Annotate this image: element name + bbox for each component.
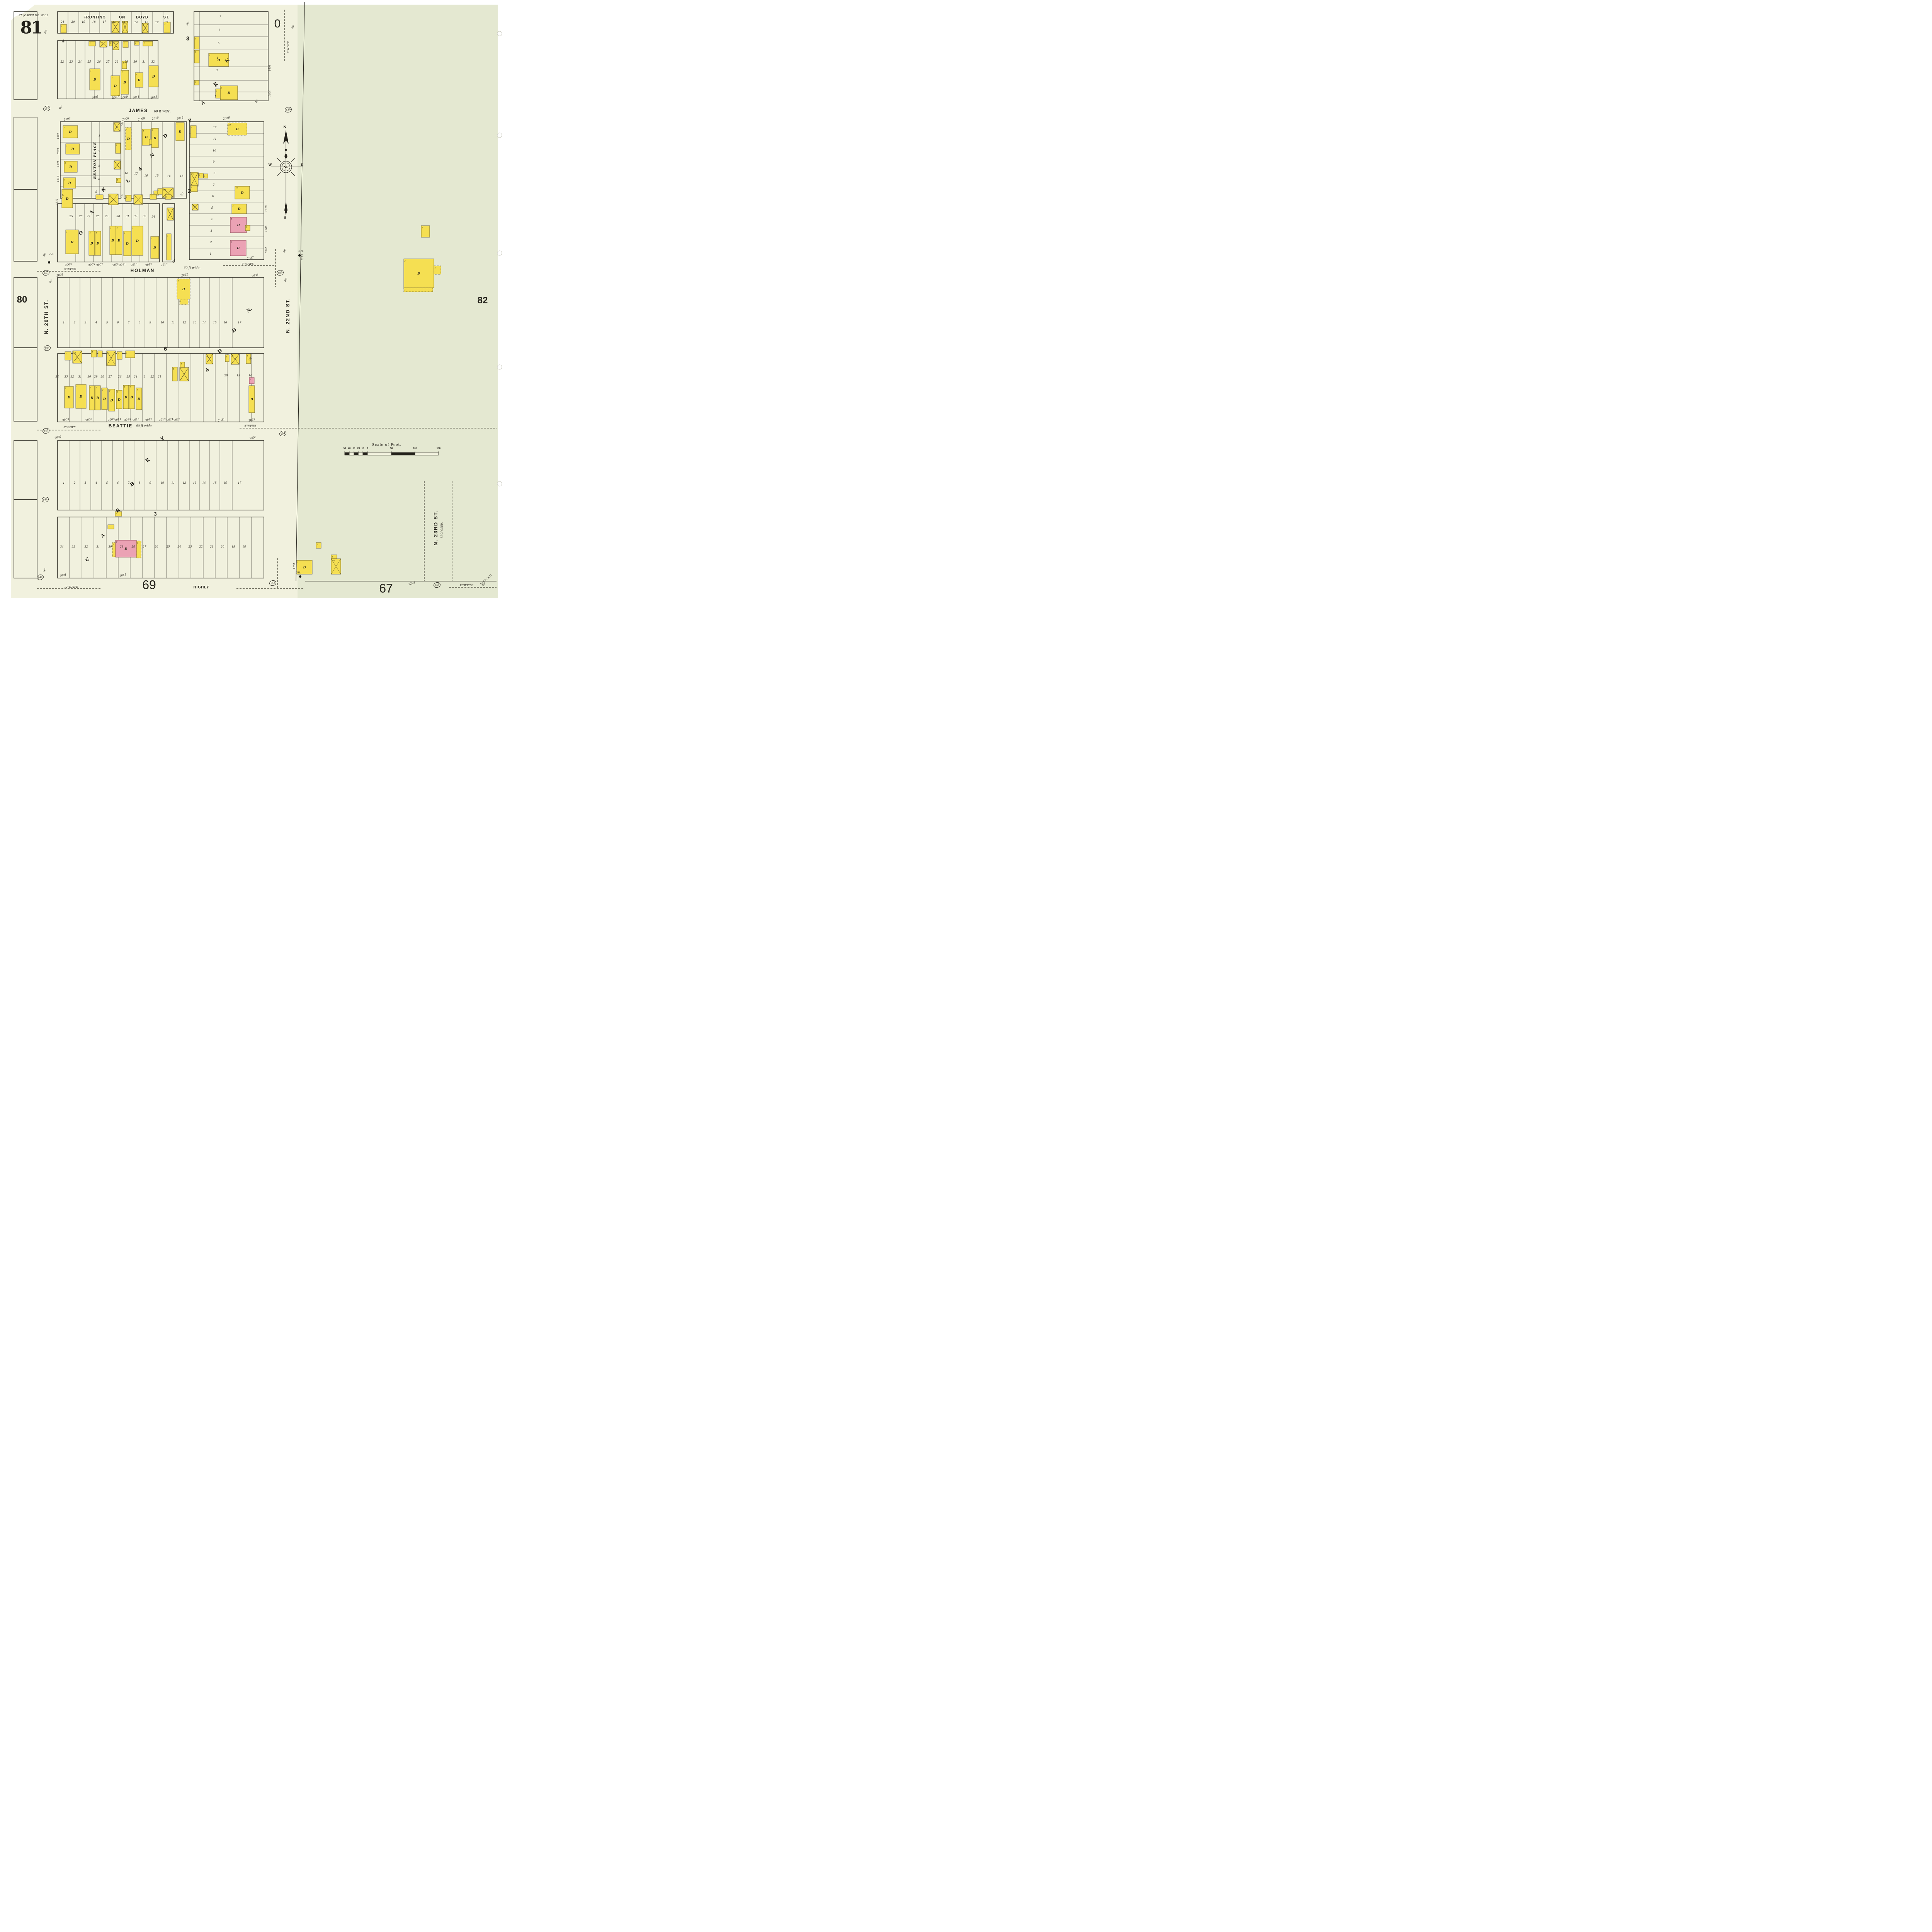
lot-number: 34 <box>152 215 155 218</box>
dwelling-label: D <box>68 181 71 185</box>
lot-number: 33 <box>143 215 146 218</box>
lot-number: 30 <box>109 545 112 548</box>
lot-number: 1 <box>63 481 65 485</box>
story-annotation: 1 <box>90 70 92 72</box>
lot-number: 12 <box>183 481 186 485</box>
lot-number: 14 <box>202 481 206 485</box>
story-annotation: 2 <box>109 195 111 197</box>
lot-number: 5 <box>95 190 97 194</box>
lot-number: 1 <box>210 252 211 255</box>
lot-number: 24 <box>78 60 82 63</box>
street-name-vertical: N. 23RD ST. <box>433 510 439 545</box>
story-annotation: 1½ <box>73 352 77 354</box>
story-annotation: 1 <box>136 74 137 76</box>
lot-number: 13 <box>193 321 197 324</box>
lot-number: 7 <box>219 15 221 19</box>
lot-number: 14 <box>202 321 206 324</box>
story-annotation: 1 <box>117 227 118 230</box>
lot-number: 31 <box>143 60 146 63</box>
story-annotation: 1 <box>96 232 97 235</box>
punch-hole <box>497 133 502 138</box>
house-number-vertical: 1311 <box>55 199 58 205</box>
dwelling-label: D <box>152 75 155 78</box>
lot-number: 11 <box>165 21 169 24</box>
lot-number: 7 <box>128 481 129 485</box>
story-annotation: 1 <box>181 363 182 366</box>
dwelling-label: D <box>138 78 141 82</box>
lot-number: 20 <box>224 374 228 377</box>
lot-number: 29 <box>120 545 124 548</box>
dwelling-label: D <box>145 135 148 139</box>
story-annotation: 1 <box>317 544 318 546</box>
lot-number: 4 <box>95 321 97 324</box>
story-annotation: 1 <box>66 231 68 233</box>
lot-number: 13 <box>193 481 197 485</box>
compass-ray <box>277 172 281 176</box>
hydrant-label: D.H. <box>296 571 301 574</box>
lot-number: 8 <box>214 172 215 175</box>
lot-number: 14 <box>167 175 171 178</box>
lot-number: 29 <box>94 375 98 378</box>
lot-number: 16 <box>113 21 116 24</box>
water-pipe-label: 12"W.PIPE <box>460 584 473 587</box>
dwelling-label: D <box>66 197 69 201</box>
dwelling-label: D <box>123 80 126 84</box>
dwelling-label: D <box>153 246 156 250</box>
scale-title: Scale of Feet. <box>372 443 401 447</box>
story-annotation: 1 <box>193 205 194 207</box>
story-annotation: 1 <box>233 205 234 207</box>
story-annotation: 1 <box>246 226 247 229</box>
story-annotation: 1 <box>64 127 65 129</box>
street-name: ST. <box>163 15 170 20</box>
dwelling-label: D <box>114 84 117 88</box>
story-annotation: 2 <box>231 355 233 357</box>
dwelling-label: D <box>241 191 244 195</box>
map-canvas: 111½1111½12111D1D1D21D1D1111D1D21D1D1D2D… <box>0 0 502 602</box>
lot-number: 25 <box>127 375 130 378</box>
lot-number: 2 <box>99 150 100 153</box>
house-number-vertical: 1323 <box>57 148 60 155</box>
story-annotation: 1½ <box>163 189 166 191</box>
block-tier <box>58 440 264 510</box>
punch-hole <box>497 365 502 369</box>
story-annotation: 1 <box>63 190 64 193</box>
lot-number: 24 <box>134 375 138 378</box>
lot-number: 24 <box>178 545 181 548</box>
house-number-vertical: 1310 <box>265 206 268 212</box>
lot-number: 11 <box>172 321 175 324</box>
partial-block <box>14 500 37 578</box>
lot-number: 12 <box>183 321 186 324</box>
lot-number: 31 <box>126 215 129 218</box>
adjacent-sheet-left: 80 <box>17 294 27 305</box>
lot-number: 27 <box>106 60 110 63</box>
story-annotation: 2 <box>114 124 116 126</box>
dwelling-label: D <box>67 395 70 399</box>
story-annotation: 1 <box>124 43 125 45</box>
compass-monogram: NS <box>283 165 288 169</box>
compass-letter-s: S <box>284 216 286 219</box>
street-line <box>296 2 304 581</box>
lot-number: 32 <box>71 375 74 378</box>
story-annotation: 1 <box>168 209 169 211</box>
scale-tick-label: 0 <box>367 447 368 450</box>
story-annotation: 1 <box>195 82 196 84</box>
lot-number: 17 <box>134 172 138 175</box>
story-annotation: 1 <box>64 179 65 181</box>
lot-number: 33 <box>65 375 68 378</box>
story-annotation: 1B <box>236 187 238 190</box>
lot-number: 10 <box>213 149 216 152</box>
house-number-vertical: 1213 <box>301 254 304 261</box>
block-number: 3 <box>186 36 189 42</box>
street-width-note: 60 ft wide. <box>184 266 200 270</box>
story-annotation: 1 <box>405 289 406 291</box>
punch-hole <box>497 251 502 255</box>
lot-number: 7 <box>213 184 214 187</box>
partial-block <box>14 440 37 500</box>
lot-number: 19 <box>82 20 85 24</box>
lot-number: 15 <box>213 481 217 485</box>
lot-number: 16 <box>145 174 148 177</box>
lot-number: 26 <box>155 545 158 548</box>
story-annotation: 1 <box>117 391 118 394</box>
lot-number: 17 <box>103 20 106 24</box>
lot-number: 10 <box>161 481 164 485</box>
lot-number: 31 <box>97 545 100 548</box>
block-tier <box>58 41 158 99</box>
lot-number: 2 <box>210 241 212 244</box>
story-annotation: 2 <box>134 196 136 198</box>
story-annotation: 1 <box>109 526 110 528</box>
scale-bar-segment <box>415 452 439 455</box>
story-annotation: 1 <box>110 43 111 45</box>
lot-number: 32 <box>151 60 155 63</box>
scale-tick-label: 30 <box>353 447 355 450</box>
lot-number: 4 <box>98 178 100 181</box>
scale-bar-segment <box>354 452 359 455</box>
lot-number: 3 <box>211 230 212 233</box>
house-number-vertical: 1319 <box>57 176 60 182</box>
story-annotation: 1 <box>199 174 201 177</box>
compass-letter-e: E <box>301 163 303 167</box>
lot-number: 4 <box>217 56 218 60</box>
dwelling-label: D <box>126 241 129 245</box>
street-name: BEATTIE <box>109 424 133 429</box>
story-annotation: 1 <box>77 386 78 388</box>
story-annotation: 1 <box>216 90 218 92</box>
lot-number: 22 <box>61 60 64 63</box>
street-name: HIGHLY <box>193 585 209 590</box>
dwelling-label: D <box>96 241 99 245</box>
lot-number: 32 <box>85 545 88 548</box>
lot-number: 6 <box>117 321 119 324</box>
story-annotation: 2 <box>404 260 406 262</box>
dwelling-label: D <box>71 147 74 151</box>
street-name: FRONTING <box>83 15 106 20</box>
lot-number: 21 <box>158 375 162 378</box>
street-name: JAMES <box>129 109 148 113</box>
lot-number: 3 <box>85 321 86 324</box>
dwelling-label: D <box>90 396 94 400</box>
story-annotation: 1 <box>115 162 116 164</box>
story-annotation: 2 <box>109 390 111 393</box>
sanborn-map-sheet: 111½1111½12111D1D1D21D1D1111D1D21D1D1D2D… <box>0 0 502 602</box>
lot-number: 5 <box>211 206 213 209</box>
lot-number: 16 <box>224 321 227 324</box>
story-annotation: 1 <box>178 280 179 282</box>
lot-number: 25 <box>70 215 73 218</box>
dwelling-label: D <box>70 240 73 244</box>
water-pipe-label: 6"W.PIPE <box>242 262 254 265</box>
dwelling-label: D <box>69 130 72 134</box>
lot-number: 27 <box>87 215 90 218</box>
lot-number: 34 <box>60 545 64 548</box>
story-annotation: 1B <box>228 124 231 126</box>
dwelling-label: D <box>236 246 240 250</box>
street-name: BOYD <box>136 15 148 20</box>
lot-number: 22 <box>151 375 154 378</box>
lot-number: 25 <box>167 545 170 548</box>
lot-number: 16 <box>224 481 227 485</box>
dwelling-label: D <box>236 127 239 131</box>
story-annotation: 1 <box>195 51 196 54</box>
house-number-vertical: 1306 <box>265 226 268 232</box>
lot-number: 1 <box>214 95 216 98</box>
scale-tick-label: 50 <box>390 447 393 450</box>
adjacent-sheet-bottom-right: 67 <box>379 582 393 596</box>
scale-tick-label: 100 <box>413 447 417 450</box>
story-annotation: 2 <box>206 355 208 357</box>
dwelling-label: D <box>250 397 253 401</box>
dwelling-label: D <box>124 547 128 551</box>
dwelling-label: D <box>79 395 82 398</box>
story-annotation: 1 <box>124 386 125 389</box>
story-annotation: 1 <box>111 227 112 230</box>
lot-number: '3 <box>143 375 145 378</box>
story-annotation: 1 <box>155 192 156 194</box>
story-annotation: 1 <box>195 38 196 40</box>
story-annotation: 1 <box>92 351 93 354</box>
story-annotation: 1 <box>135 43 136 45</box>
partial-block <box>14 348 37 421</box>
lot-number: 28 <box>101 375 104 378</box>
adjacent-sheet-bottom-left: 69 <box>142 578 156 592</box>
story-annotation: 1 <box>113 544 114 546</box>
story-annotation: 1 <box>226 356 227 358</box>
dwelling-label: D <box>93 78 96 82</box>
water-pipe-label: 8"W.PIPE <box>64 426 76 429</box>
lot-number: 5 <box>106 481 108 485</box>
block-number: 2 <box>188 188 191 195</box>
frame-building <box>149 139 152 145</box>
story-annotation: 1 <box>250 387 251 389</box>
house-number-vertical: 1404 <box>268 90 271 97</box>
story-annotation: 1 <box>116 145 117 147</box>
dwelling-label: D <box>303 565 306 569</box>
lot-number: 25 <box>88 60 91 63</box>
compass-ray <box>277 158 281 162</box>
lot-number: 30 <box>134 60 137 63</box>
scale-tick-label: 20 <box>357 447 360 450</box>
compass-ornament <box>284 153 287 159</box>
dwelling-label: D <box>237 223 240 227</box>
lot-number: 11 <box>213 138 217 141</box>
story-annotation: 1 <box>66 353 67 355</box>
lot-number: 17 <box>238 321 241 324</box>
lot-number: 13 <box>145 21 148 24</box>
lot-number: 12 <box>155 21 159 24</box>
story-annotation: 1 <box>137 542 138 544</box>
house-number-vertical: 1321 <box>57 161 60 167</box>
block-number: 6 <box>164 346 167 352</box>
dwelling-label: D <box>90 241 93 245</box>
story-annotation: 1 <box>61 26 63 28</box>
compass-letter-w: W <box>268 163 272 167</box>
lot-number: 15 <box>124 21 128 24</box>
dwelling-label: D <box>417 272 420 276</box>
compass-south-feather <box>284 201 287 215</box>
street-name: ON <box>119 15 125 20</box>
lot-number: 20 <box>221 545 224 548</box>
lot-number: 21 <box>61 20 65 24</box>
lot-number: 14 <box>134 21 138 24</box>
lot-number: 5 <box>106 321 108 324</box>
story-annotation: 1 <box>332 556 333 558</box>
water-pipe-label-vertical: 6"W.PIPE <box>287 41 290 53</box>
lot-number: 22 <box>199 545 203 548</box>
scale-tick-label: 150 <box>437 447 440 450</box>
dwelling-label: D <box>179 130 182 134</box>
lot-number: 30 <box>117 215 120 218</box>
story-annotation: 1½ <box>100 41 104 44</box>
lot-number: 7 <box>128 321 129 324</box>
story-annotation: 2 <box>152 129 153 132</box>
story-annotation: 1 <box>209 54 211 57</box>
lot-number: 31 <box>78 375 82 378</box>
story-annotation: 2 <box>180 369 182 371</box>
scale-bar-segment <box>358 452 363 455</box>
story-annotation: 1 <box>435 267 436 269</box>
lot-number: 9 <box>150 321 151 324</box>
story-annotation: 1 <box>144 43 145 45</box>
street-width-note: 60 ft wide <box>136 424 152 428</box>
block-tier <box>189 122 264 260</box>
story-annotation: 1 <box>130 386 131 389</box>
story-annotation: 1 <box>99 352 100 354</box>
lot-number: 13 <box>180 175 184 178</box>
lot-number: 1 <box>63 321 65 324</box>
dwelling-label: D <box>153 136 156 140</box>
dwelling-label: D <box>110 398 113 402</box>
story-annotation: 1 <box>112 77 113 79</box>
hydrant-dot <box>299 575 301 578</box>
lot-number: 33 <box>72 545 75 548</box>
scale-tick-label: 10 <box>362 447 364 450</box>
story-annotation: 1 <box>66 145 68 147</box>
lot-number: 6 <box>212 195 214 198</box>
story-annotation: 1 <box>204 175 206 177</box>
compass-letter-n: N <box>283 125 286 129</box>
lot-number: 26 <box>97 60 101 63</box>
benton-place-label: BENTON PLACE <box>93 142 97 179</box>
story-annotation: 1 <box>158 190 160 192</box>
lot-number: 9 <box>213 160 214 163</box>
house-number-vertical: 1325 <box>57 133 60 139</box>
story-annotation: 1 <box>298 561 299 564</box>
dwelling-label: D <box>117 398 121 401</box>
story-annotation: 1 <box>124 232 126 235</box>
lot-number: 8 <box>139 321 140 324</box>
story-annotation: 1 <box>133 227 134 230</box>
water-pipe-label: 12"W.PIPE <box>65 585 78 588</box>
scale-bar-segment <box>345 452 349 455</box>
lot-number: 23 <box>70 60 73 63</box>
story-annotation: 1 <box>126 352 128 354</box>
story-annotation: 1 <box>90 43 91 45</box>
dwelling-label: D <box>111 238 114 242</box>
lot-number: 11 <box>172 481 175 485</box>
lot-number: 18 <box>243 545 246 548</box>
story-annotation: 1 <box>116 513 117 515</box>
frame-building <box>167 234 171 260</box>
map-header: ST. JOSEPH MO. VOL.1. <box>19 14 49 17</box>
lot-number: 8 <box>139 481 140 485</box>
dwelling-label: D <box>96 396 99 400</box>
story-annotation: 1 <box>97 196 98 198</box>
scale-bar-segment <box>363 452 367 455</box>
dwelling-label: D <box>69 165 72 169</box>
street-width-note: 60 ft wide. <box>154 110 170 113</box>
hydrant-label: F.H. <box>49 253 54 256</box>
scale-tick-label: 40 <box>348 447 351 450</box>
lot-number: 18 <box>249 374 252 377</box>
lot-number: 4 <box>211 218 213 221</box>
dwelling-label: D <box>238 207 241 211</box>
scale-bar-segment <box>367 452 391 455</box>
story-annotation: 1 <box>247 355 248 357</box>
story-annotation: 1½ <box>191 173 194 176</box>
dwelling-label: D <box>137 397 140 401</box>
lot-number: 2 <box>74 321 75 324</box>
lot-number: 30 <box>88 375 91 378</box>
compass-ray <box>291 172 295 176</box>
story-annotation: 1 <box>166 196 167 198</box>
hydrant-label: D.H. <box>298 250 304 253</box>
dwelling-label: D <box>182 287 185 291</box>
lot-number: 32 <box>134 215 138 218</box>
story-annotation: 2 <box>65 388 66 390</box>
dwelling-label: D <box>103 397 106 401</box>
lot-number: 19 <box>237 374 240 377</box>
dwelling-label: D <box>124 395 128 399</box>
lot-number: 3 <box>85 481 86 485</box>
partial-block <box>14 277 37 348</box>
street-name: HOLMAN <box>131 269 155 273</box>
partial-block <box>14 117 37 189</box>
story-annotation: 1 <box>250 379 251 381</box>
lot-number: 4 <box>95 481 97 485</box>
lot-number: 1 <box>99 134 100 138</box>
adjacent-sheet-right: 82 <box>478 295 488 306</box>
block-number-zero: 0 <box>274 17 281 31</box>
dwelling-label: D <box>227 91 230 95</box>
lot-number: 29 <box>125 60 128 63</box>
block-number: 3 <box>154 511 156 517</box>
lot-number: 20 <box>71 20 75 24</box>
street-name-vertical: N. 20TH ST. <box>44 299 49 334</box>
